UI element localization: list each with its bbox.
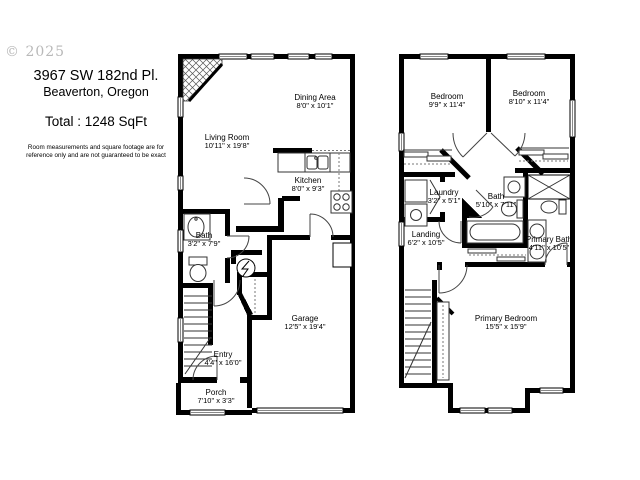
floor-plan-page: © 2025 3967 SW 182nd Pl. Beaverton, Oreg… [0, 0, 640, 480]
room-label-living-room: Living Room 10'11" x 19'8" [205, 134, 250, 150]
room-label-laundry: Laundry 3'2" x 5'1" [428, 189, 461, 205]
room-dims: 5'10" x 7'11" [476, 201, 517, 209]
second-floor-stairs [405, 290, 431, 378]
first-floor-fireplace-corner [183, 59, 222, 101]
room-dims: 7'10" x 3'3" [198, 397, 235, 405]
room-dims: 8'0" x 9'3" [292, 185, 325, 193]
room-label-primary-bedroom: Primary Bedroom 15'5" x 15'9" [475, 315, 537, 331]
room-label-bedroom-1: Bedroom 9'9" x 11'4" [429, 93, 465, 109]
room-dims: 3'2" x 5'1" [428, 197, 461, 205]
room-dims: 10'11" x 19'8" [205, 142, 250, 150]
room-dims: 4'4" x 16'0" [205, 359, 242, 367]
room-dims: 4'11" x 10'5" [526, 244, 572, 252]
room-dims: 15'5" x 15'9" [475, 323, 537, 331]
room-dims: 8'0" x 10'1" [294, 102, 335, 110]
room-label-bath-2: Bath 5'10" x 7'11" [476, 193, 517, 209]
room-dims: 3'2" x 7'9" [188, 240, 221, 248]
room-label-entry: Entry 4'4" x 16'0" [205, 351, 242, 367]
room-dims: 6'2" x 10'5" [408, 239, 445, 247]
room-label-bedroom-2: Bedroom 8'10" x 11'4" [509, 90, 550, 106]
room-label-landing: Landing 6'2" x 10'5" [408, 231, 445, 247]
room-label-kitchen: Kitchen 8'0" x 9'3" [292, 177, 325, 193]
room-label-garage: Garage 12'5" x 19'4" [284, 315, 325, 331]
room-label-porch: Porch 7'10" x 3'3" [198, 389, 235, 405]
room-label-primary-bath: Primary Bath 4'11" x 10'5" [526, 236, 572, 252]
room-dims: 8'10" x 11'4" [509, 98, 550, 106]
room-label-bath: Bath 3'2" x 7'9" [188, 232, 221, 248]
room-label-dining-area: Dining Area 8'0" x 10'1" [294, 94, 335, 110]
room-dims: 12'5" x 19'4" [284, 323, 325, 331]
room-dims: 9'9" x 11'4" [429, 101, 465, 109]
